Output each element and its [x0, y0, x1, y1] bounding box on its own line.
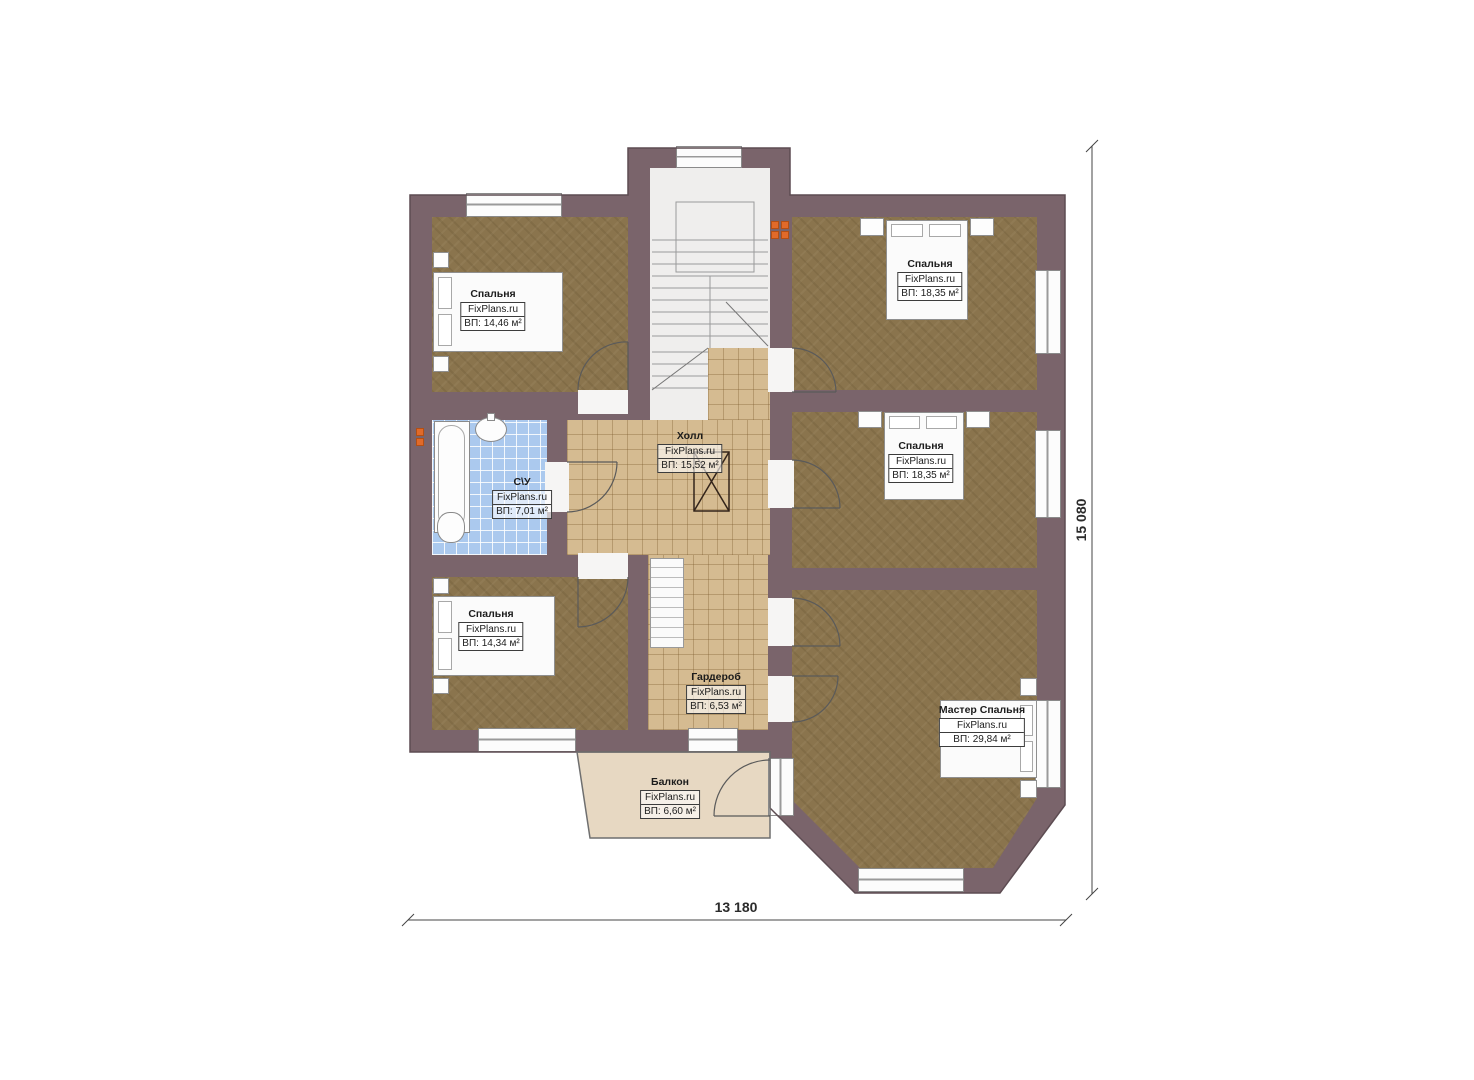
door-gap-master-wardrobe: [768, 676, 794, 722]
room-area: ВП: 7,01 м²: [493, 505, 551, 518]
room-stairwell: [650, 168, 770, 348]
room-name: Спальня: [458, 608, 523, 620]
floor-plan: 13 180 15 080 Спальня FixPlans.ru ВП: 14…: [0, 0, 1474, 1080]
stair-lower-flight: [650, 348, 708, 420]
pillow: [889, 416, 920, 429]
hall-upper-strip: [708, 348, 770, 420]
fixplans-watermark: FixPlans.ru: [889, 455, 952, 469]
room-area: ВП: 14,46 м²: [461, 317, 524, 330]
label-master-bedroom: Мастер Спальня FixPlans.ru ВП: 29,84 м²: [939, 704, 1025, 747]
fixplans-watermark: FixPlans.ru: [940, 719, 1024, 733]
dimension-label-width: 13 180: [715, 899, 758, 915]
toilet: [437, 512, 465, 543]
window-master-right: [1035, 700, 1061, 788]
room-name: Спальня: [888, 440, 953, 452]
balcony-door-master: [768, 758, 794, 816]
door-gap-bedroom-top-right: [768, 348, 794, 392]
room-name: С\У: [492, 476, 552, 488]
room-area: ВП: 15,52 м²: [658, 459, 721, 472]
room-area: ВП: 18,35 м²: [898, 287, 961, 300]
nightstand: [433, 678, 449, 694]
room-name: Балкон: [640, 776, 700, 788]
pillow: [438, 601, 452, 633]
label-bedroom-top-left: Спальня FixPlans.ru ВП: 14,46 м²: [460, 288, 525, 331]
nightstand: [433, 252, 449, 268]
fixplans-watermark: FixPlans.ru: [461, 303, 524, 317]
door-gap-master-hall: [768, 598, 794, 646]
nightstand: [966, 411, 990, 428]
fixplans-watermark: FixPlans.ru: [687, 686, 745, 700]
radiator-stairwell: [771, 221, 791, 239]
room-area: ВП: 18,35 м²: [889, 469, 952, 482]
window-bedroom-top-left: [466, 193, 562, 217]
pillow: [926, 416, 957, 429]
nightstand: [858, 411, 882, 428]
pillow: [438, 638, 452, 670]
dimension-label-height: 15 080: [1073, 498, 1089, 541]
window-stairwell: [676, 146, 742, 168]
fixplans-watermark: FixPlans.ru: [658, 445, 721, 459]
sink-tap: [487, 413, 495, 421]
label-bedroom-mid-right: Спальня FixPlans.ru ВП: 18,35 м²: [888, 440, 953, 483]
nightstand: [860, 218, 884, 236]
pillow: [891, 224, 923, 237]
door-gap-bedroom-top-left: [578, 390, 628, 414]
closet: [650, 558, 684, 648]
label-bedroom-top-right: Спальня FixPlans.ru ВП: 18,35 м²: [897, 258, 962, 301]
pillow: [438, 314, 452, 346]
label-hall: Холл FixPlans.ru ВП: 15,52 м²: [657, 430, 722, 473]
radiator-bathroom: [416, 428, 426, 446]
room-area: ВП: 14,34 м²: [459, 637, 522, 650]
fixplans-watermark: FixPlans.ru: [898, 273, 961, 287]
window-bedroom-mid-right: [1035, 430, 1061, 518]
window-bay: [858, 868, 964, 892]
fixplans-watermark: FixPlans.ru: [641, 791, 699, 805]
fixplans-watermark: FixPlans.ru: [459, 623, 522, 637]
label-balcony: Балкон FixPlans.ru ВП: 6,60 м²: [640, 776, 700, 819]
room-area: ВП: 6,60 м²: [641, 805, 699, 818]
room-name: Гардероб: [686, 671, 746, 683]
room-name: Спальня: [460, 288, 525, 300]
nightstand: [1020, 678, 1037, 696]
balcony-door-wardrobe: [688, 728, 738, 752]
door-gap-bedroom-mid-right: [768, 460, 794, 508]
fixplans-watermark: FixPlans.ru: [493, 491, 551, 505]
window-bedroom-bottom-left: [478, 728, 576, 752]
nightstand: [433, 578, 449, 594]
label-bathroom: С\У FixPlans.ru ВП: 7,01 м²: [492, 476, 552, 519]
nightstand: [433, 356, 449, 372]
label-bedroom-bottom-left: Спальня FixPlans.ru ВП: 14,34 м²: [458, 608, 523, 651]
door-gap-bedroom-bottom-left: [578, 553, 628, 579]
pillow: [929, 224, 961, 237]
room-area: ВП: 29,84 м²: [940, 733, 1024, 746]
room-name: Мастер Спальня: [939, 704, 1025, 716]
room-name: Холл: [657, 430, 722, 442]
pillow: [438, 277, 452, 309]
room-area: ВП: 6,53 м²: [687, 700, 745, 713]
nightstand: [970, 218, 994, 236]
window-bedroom-top-right: [1035, 270, 1061, 354]
room-name: Спальня: [897, 258, 962, 270]
nightstand: [1020, 780, 1037, 798]
label-wardrobe: Гардероб FixPlans.ru ВП: 6,53 м²: [686, 671, 746, 714]
